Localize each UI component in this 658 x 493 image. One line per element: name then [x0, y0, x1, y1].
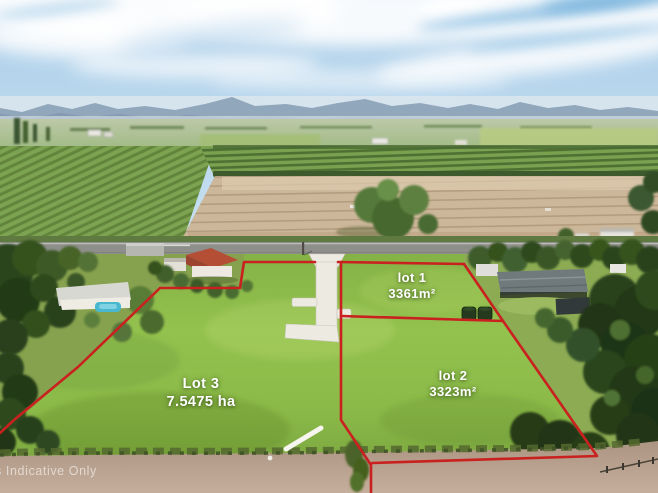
lot-2-label: lot 2 3323m² — [429, 368, 476, 401]
aerial-property-photo: lot 1 3361m² lot 2 3323m² Lot 3 7.5475 h… — [0, 0, 658, 493]
carport — [476, 264, 498, 276]
vineyard-rows — [0, 146, 215, 243]
house-walls — [192, 266, 232, 277]
lot-1-name: lot 1 — [388, 270, 435, 286]
lot-3-name: Lot 3 — [167, 375, 236, 393]
long-house-roof — [497, 269, 588, 295]
lot-3-label: Lot 3 7.5475 ha — [167, 375, 236, 411]
lot-3-area: 7.5475 ha — [167, 393, 236, 411]
white-vehicle — [610, 264, 626, 273]
lot-1-label: lot 1 3361m² — [388, 270, 435, 303]
lot-2-name: lot 2 — [429, 368, 476, 384]
plowed-field-light-band — [222, 177, 658, 190]
white-dot — [268, 456, 273, 461]
lot-1-area: 3361m² — [388, 286, 435, 302]
orchard-hedge-top — [213, 145, 658, 149]
watermark-text: s Indicative Only — [0, 464, 97, 478]
lot-2-area: 3323m² — [429, 384, 476, 400]
landscape-scene — [0, 0, 658, 493]
